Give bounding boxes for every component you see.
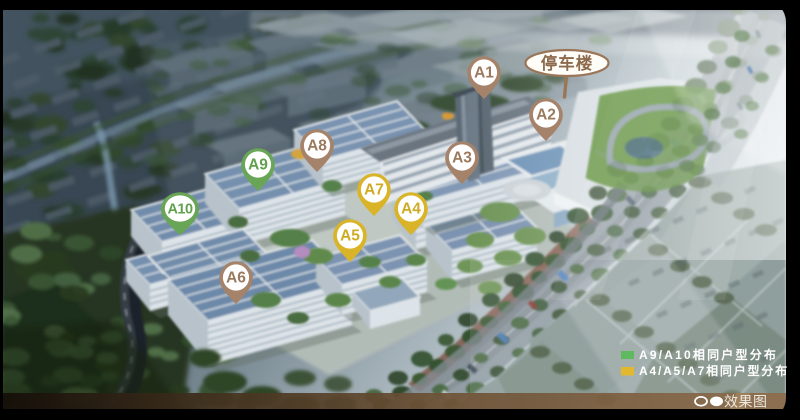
- svg-text:A9: A9: [248, 157, 268, 174]
- svg-text:A1: A1: [474, 65, 494, 82]
- svg-text:A7: A7: [364, 182, 384, 199]
- svg-text:A3: A3: [452, 150, 472, 167]
- svg-text:A4: A4: [401, 201, 421, 218]
- svg-text:A2: A2: [536, 107, 556, 124]
- svg-text:停车楼: 停车楼: [541, 53, 594, 73]
- svg-text:A9/A10相同户型分布: A9/A10相同户型分布: [639, 347, 778, 362]
- svg-text:A8: A8: [307, 138, 327, 155]
- svg-text:A5: A5: [340, 228, 360, 245]
- svg-text:A4/A5/A7相同户型分布: A4/A5/A7相同户型分布: [639, 363, 789, 378]
- svg-text:A10: A10: [167, 202, 193, 218]
- svg-text:效果图: 效果图: [724, 394, 768, 410]
- svg-text:A6: A6: [226, 270, 246, 287]
